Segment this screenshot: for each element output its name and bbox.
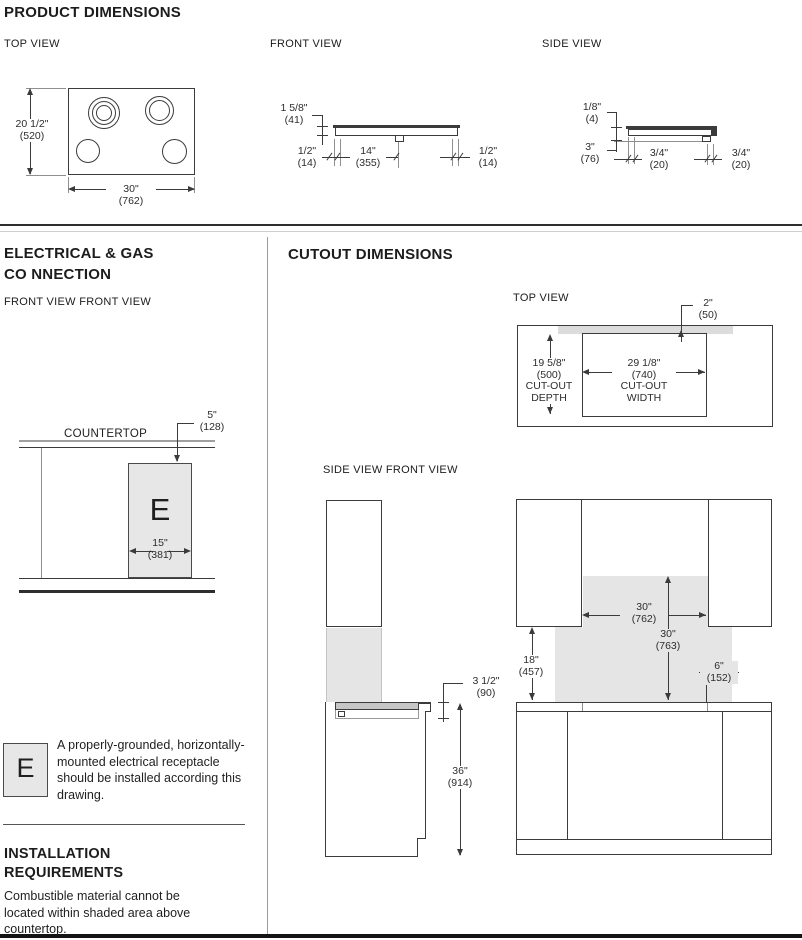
dim-rear-strip: 2" (50): [692, 298, 724, 321]
countertop-underside-line: [19, 447, 215, 448]
dim-side-body: 3" (76): [572, 142, 608, 165]
countertop-surface-line: [19, 440, 215, 442]
arrowhead: [68, 186, 75, 192]
extension-line: [26, 175, 66, 176]
soffit-line: [582, 499, 708, 500]
arrowhead: [529, 627, 535, 634]
base-cabinet-line: [771, 712, 772, 855]
arrowhead: [129, 548, 136, 554]
arrowhead: [698, 369, 705, 375]
cutout-top-view-label: TOP VIEW: [513, 292, 569, 304]
dim-top-height: 20 1/2" (520): [10, 119, 54, 142]
side-fitting: [702, 136, 711, 142]
legend-text: A properly-grounded, horizontally-mounte…: [57, 737, 251, 803]
divider-horizontal: [0, 224, 802, 226]
installation-body: Combustible material cannot be located w…: [4, 888, 206, 938]
dim-cooktop-depth: 3 1/2" (90): [462, 676, 510, 699]
e-symbol: E: [128, 492, 192, 528]
burner-small-right: [162, 139, 187, 164]
toe-kick-line: [417, 838, 418, 857]
base-cabinet-bottom: [325, 856, 418, 857]
cooktop-side-lip: [626, 126, 717, 129]
installation-title-line1: INSTALLATION: [4, 846, 111, 862]
burner-medium-inner: [149, 100, 170, 121]
extension-line: [452, 139, 453, 166]
arrowhead: [678, 330, 684, 337]
cutout-title: CUTOUT DIMENSIONS: [288, 246, 453, 263]
base-cabinet-line: [425, 711, 426, 838]
wall-cabinet-left: [516, 499, 582, 627]
leader-line: [616, 112, 617, 152]
arrowhead: [174, 455, 180, 462]
electrical-title-line1: ELECTRICAL & GAS: [4, 245, 154, 262]
dim-side-rear-inset: 3/4" (20): [724, 148, 758, 171]
dim-cutout-depth: 19 5/8" (500) CUT-OUT DEPTH: [520, 358, 578, 404]
extension-line: [458, 139, 459, 166]
base-cabinet-line: [722, 712, 723, 840]
tick-line: [611, 140, 622, 141]
leader-line: [322, 115, 323, 145]
top-view-label: TOP VIEW: [4, 38, 60, 50]
base-cabinet-bottom: [516, 854, 772, 855]
base-cabinet-line: [567, 712, 568, 840]
toe-kick-line: [417, 838, 426, 839]
dim-side-clearance: 6" (152): [700, 661, 738, 684]
floor-line-thick: [19, 590, 215, 593]
toe-kick-line: [516, 839, 772, 840]
base-cabinet-line: [516, 712, 517, 855]
dim-clearance-width: 30" (762): [620, 602, 668, 625]
product-dimensions-title: PRODUCT DIMENSIONS: [4, 4, 181, 21]
arrowhead: [457, 849, 463, 856]
leader-line: [177, 423, 194, 424]
cutout-side-front-label: SIDE VIEW FRONT VIEW: [323, 464, 458, 476]
dim-receptacle-width: 15" (381): [140, 538, 180, 561]
dim-line: [694, 159, 722, 160]
cooktop-front-lip: [333, 125, 460, 128]
leader-line: [607, 112, 616, 113]
arrowhead: [457, 703, 463, 710]
dim-counter-height: 36" (914): [438, 766, 482, 789]
countertop-joint: [582, 703, 583, 711]
tick-line: [438, 718, 449, 719]
cabinet-wall-line: [41, 448, 42, 578]
legend-divider: [3, 824, 245, 825]
arrowhead: [582, 612, 589, 618]
cooktop-side-endcap: [711, 126, 717, 136]
front-view-label: FRONT VIEW: [270, 38, 342, 50]
leader-line: [607, 150, 616, 151]
extension-line: [334, 139, 335, 166]
dim-cutout-width: 29 1/8" (740) CUT-OUT WIDTH: [612, 358, 676, 404]
arrowhead: [184, 548, 191, 554]
arrowhead: [188, 186, 195, 192]
extension-line: [707, 144, 708, 165]
dim-front-right-offset: 1/2" (14): [472, 146, 504, 169]
leader-line: [443, 683, 463, 684]
gas-connection-hook: [395, 136, 404, 142]
dim-front-left-offset: 1/2" (14): [292, 146, 322, 169]
tick-line: [438, 702, 449, 703]
floor-line: [19, 578, 215, 579]
countertop-joint: [707, 703, 708, 711]
dim-clearance-height: 30" (763): [644, 629, 692, 652]
dim-cabinet-height: 18" (457): [508, 655, 554, 678]
arrowhead: [582, 369, 589, 375]
arrowhead: [27, 168, 33, 175]
dim-front-height: 1 5/8" (41): [276, 103, 312, 126]
wall-cabinet-side: [326, 500, 382, 627]
cooktop-slab-side: [335, 702, 419, 710]
spec-sheet-page: PRODUCT DIMENSIONS TOP VIEW FRONT VIEW S…: [0, 0, 802, 940]
dim-front-center: 14" (355): [350, 146, 386, 169]
countertop-band: [516, 702, 772, 712]
arrowhead: [529, 693, 535, 700]
cooktop-underbox: [335, 710, 419, 719]
wall-cabinet-right: [708, 499, 772, 627]
dim-side-front-inset: 3/4" (20): [644, 148, 674, 171]
countertop-label: COUNTERTOP: [64, 428, 147, 440]
divider-vertical: [267, 237, 268, 934]
dim-receptacle-offset: 5" (128): [194, 410, 230, 433]
clearance-shaded-column: [326, 628, 382, 702]
cooktop-side-body: [628, 129, 715, 136]
divider-horizontal-light: [0, 231, 802, 232]
arrowhead: [547, 334, 553, 341]
tick-line: [317, 126, 328, 127]
dim-side-lip: 1/8" (4): [576, 102, 608, 125]
installation-title-line2: REQUIREMENTS: [4, 865, 123, 881]
dim-line: [440, 157, 470, 158]
legend-e-symbol: E: [3, 753, 48, 784]
extension-line: [706, 685, 707, 702]
dim-top-width: 30" (762): [106, 184, 156, 207]
gas-fitting: [338, 711, 345, 717]
leader-line: [312, 115, 322, 116]
burner-small-left: [76, 139, 100, 163]
arrowhead: [665, 576, 671, 583]
arrowhead: [665, 693, 671, 700]
arrowhead: [547, 407, 553, 414]
extension-line: [713, 144, 714, 165]
arrowhead: [27, 88, 33, 95]
cooktop-front-body: [335, 127, 458, 136]
tick-line: [611, 127, 622, 128]
burner-large-inner: [96, 105, 112, 121]
arrowhead: [699, 612, 706, 618]
side-view-label: SIDE VIEW: [542, 38, 602, 50]
base-cabinet-line: [325, 702, 326, 857]
electrical-title-line2: CO NNECTION: [4, 266, 111, 283]
tick-line: [317, 135, 328, 136]
electrical-view-label: FRONT VIEW FRONT VIEW: [4, 296, 151, 308]
